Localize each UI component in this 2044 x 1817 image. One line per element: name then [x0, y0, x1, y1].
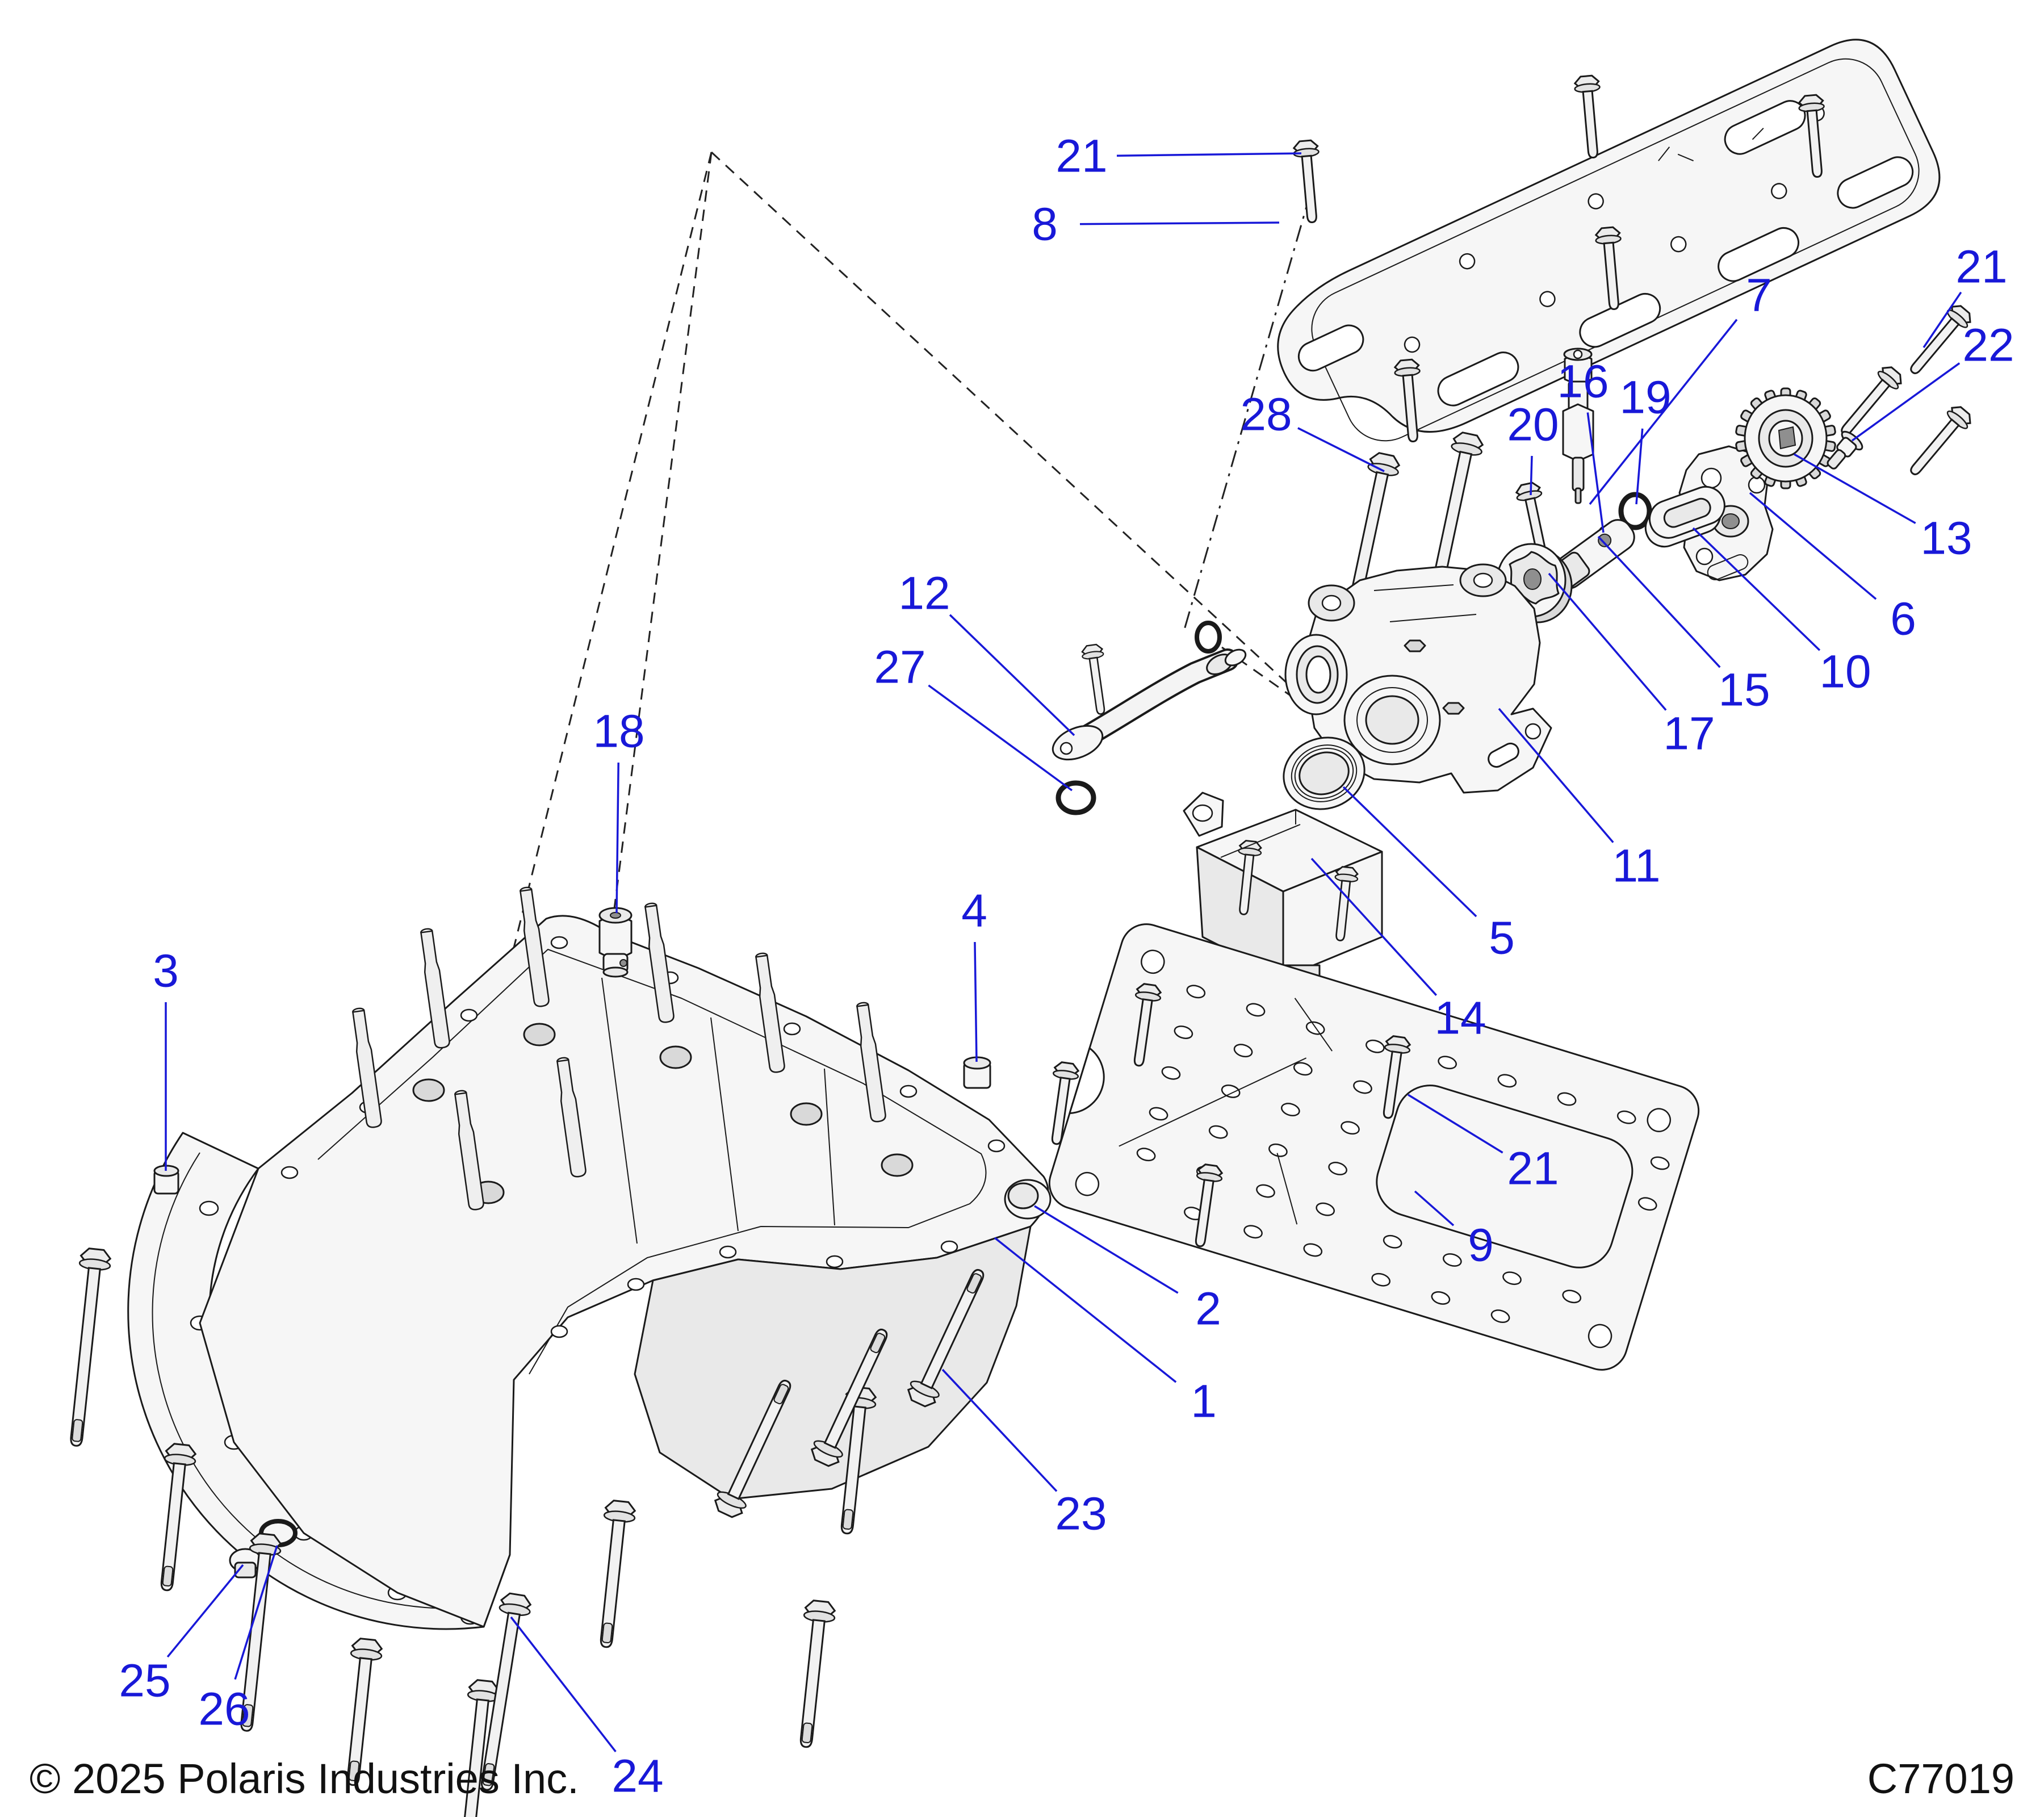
- parts-diagram-page: 2187212216201928136101517122711518143421…: [0, 0, 2044, 1817]
- pan-boss: [413, 1079, 444, 1101]
- pan-rim-hole: [989, 1140, 1004, 1152]
- callout-label-3: 3: [153, 945, 179, 997]
- pan-rim-hole: [941, 1241, 957, 1253]
- leader-line-4: [975, 942, 977, 1062]
- leader-line-20: [1531, 456, 1532, 495]
- pan-boss: [660, 1046, 691, 1068]
- callout-label-23: 23: [1055, 1488, 1107, 1540]
- callout-label-28: 28: [1240, 389, 1292, 441]
- pump-face-bolt: [1443, 703, 1464, 714]
- callout-label-18: 18: [593, 706, 644, 757]
- callout-label-10: 10: [1819, 646, 1871, 698]
- pan-rim-hole: [628, 1279, 644, 1290]
- leader-line-12: [950, 615, 1074, 735]
- pump-face-bolt: [1405, 640, 1425, 651]
- leader-line-28: [1298, 428, 1384, 471]
- callout-label-21: 21: [1955, 241, 2007, 293]
- diagram-code: C77019: [1867, 1755, 2014, 1802]
- oil-pan: [128, 886, 1048, 1629]
- callout-label-1: 1: [1191, 1376, 1217, 1427]
- pan-rim-hole: [551, 1326, 567, 1337]
- pan-rim-hole: [784, 1023, 800, 1035]
- pan-bolt: [590, 1500, 636, 1648]
- button-plug-2: [1005, 1180, 1050, 1219]
- callout-label-17: 17: [1663, 708, 1715, 760]
- callout-label-13: 13: [1920, 513, 1972, 564]
- leader-line-25: [167, 1565, 243, 1657]
- callout-label-21: 21: [1507, 1143, 1559, 1195]
- callout-label-5: 5: [1489, 912, 1515, 964]
- pan-bolt: [790, 1600, 836, 1748]
- callout-label-8: 8: [1032, 199, 1058, 250]
- leader-line-13: [1794, 454, 1916, 523]
- callout-label-2: 2: [1195, 1283, 1221, 1335]
- pan-rim-hole: [461, 1010, 477, 1021]
- dashed-line-right: [711, 152, 1296, 692]
- exploded-parts-diagram: 2187212216201928136101517122711518143421…: [0, 0, 2044, 1817]
- callout-label-20: 20: [1507, 399, 1559, 451]
- callout-label-9: 9: [1468, 1220, 1494, 1271]
- leader-line-16: [1588, 413, 1603, 533]
- callout-label-11: 11: [1612, 840, 1660, 892]
- oil-pickup-tube-12: [1048, 623, 1249, 766]
- leader-line-27: [928, 685, 1072, 790]
- tube-o-ring: [1197, 623, 1220, 651]
- callout-label-26: 26: [198, 1684, 250, 1735]
- flange-hole: [200, 1201, 218, 1215]
- tube-screw: [1081, 644, 1112, 715]
- callout-label-19: 19: [1619, 372, 1671, 424]
- copyright-text: © 2025 Polaris Industries Inc.: [30, 1755, 579, 1802]
- leader-line-17: [1549, 573, 1666, 710]
- pan-bolt: [61, 1247, 112, 1447]
- leader-line-23: [943, 1370, 1057, 1491]
- cluster-screw: [1903, 403, 1975, 482]
- pan-rim-hole: [900, 1086, 916, 1097]
- callout-label-4: 4: [961, 885, 987, 937]
- leader-line-21: [1117, 153, 1301, 156]
- leader-line-8: [1080, 223, 1279, 224]
- pan-rim-hole: [720, 1246, 736, 1258]
- callout-label-22: 22: [1962, 320, 2014, 371]
- oil-pump-sprocket-13: [1736, 388, 1836, 488]
- callout-label-25: 25: [119, 1655, 170, 1707]
- pan-boss: [882, 1154, 912, 1176]
- cup-plug-4: [964, 1057, 990, 1088]
- gasket-screw: [1574, 75, 1606, 158]
- pan-rim-hole: [551, 937, 567, 948]
- callout-label-14: 14: [1434, 993, 1486, 1044]
- oil-jet-fitting-18: [600, 908, 631, 977]
- callout-label-16: 16: [1557, 356, 1609, 408]
- leader-line-1: [995, 1238, 1176, 1382]
- cluster-screw: [1834, 363, 1905, 442]
- callout-label-27: 27: [874, 642, 925, 693]
- callout-label-24: 24: [611, 1751, 663, 1802]
- callout-label-7: 7: [1746, 270, 1772, 321]
- leader-line-18: [617, 763, 618, 913]
- callout-label-12: 12: [898, 568, 950, 619]
- callout-label-6: 6: [1890, 593, 1916, 645]
- pan-rim-hole: [827, 1256, 843, 1267]
- o-ring-27: [1058, 783, 1094, 813]
- leader-line-24: [511, 1617, 615, 1752]
- pan-rim-hole: [282, 1167, 298, 1178]
- pan-boss: [791, 1103, 822, 1125]
- callout-label-21: 21: [1055, 131, 1107, 182]
- callout-label-15: 15: [1718, 664, 1770, 716]
- gasket-screw-21: [1293, 140, 1325, 223]
- pan-bolt: [151, 1443, 197, 1592]
- pan-boss: [524, 1024, 555, 1045]
